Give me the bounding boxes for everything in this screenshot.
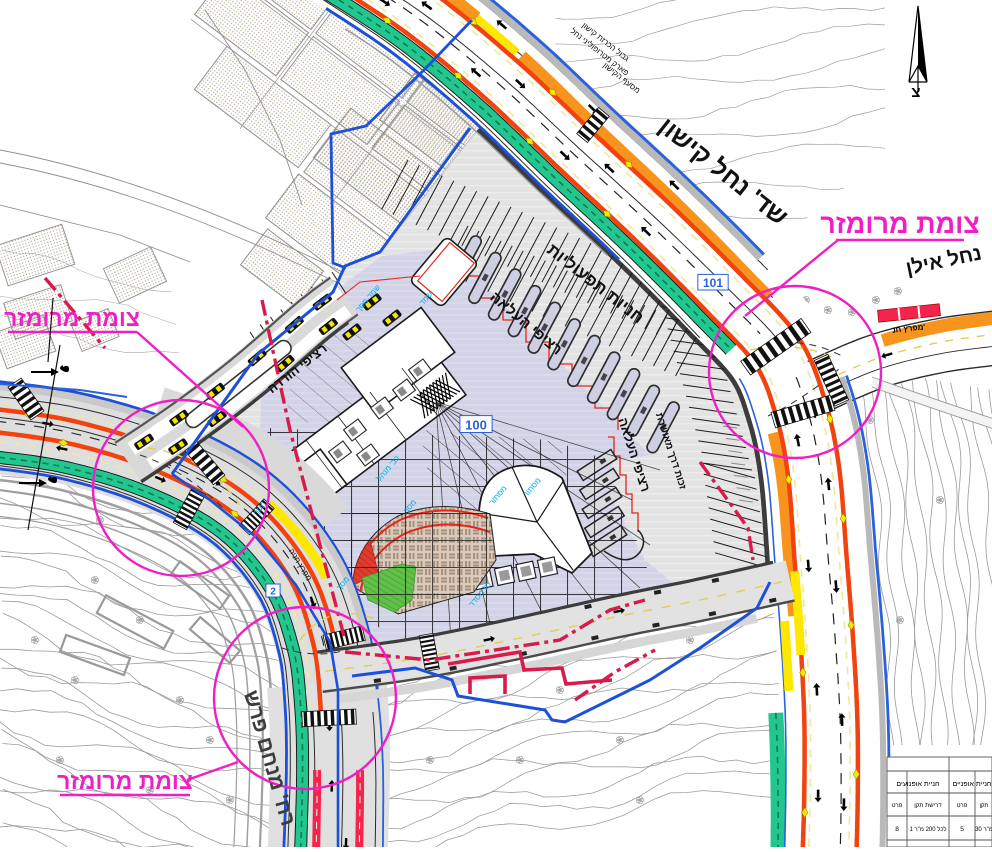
svg-text:5: 5 (960, 826, 964, 833)
svg-text:פרט: פרט (892, 803, 903, 809)
svg-text:צומת מרומזר: צומת מרומזר (57, 768, 193, 794)
svg-text:חניית אופניים: חניית אופניים (952, 781, 991, 788)
svg-text:תקן: תקן (979, 803, 988, 809)
svg-text:2: 2 (270, 587, 276, 598)
svg-text:צ: צ (911, 84, 920, 101)
svg-text:8: 8 (895, 826, 899, 833)
svg-text:דרישת תקן: דרישת תקן (914, 803, 942, 809)
svg-text:צומת מרומזר: צומת מרומזר (820, 209, 979, 239)
svg-text:101: 101 (703, 276, 723, 290)
svg-text:צומת מרומזר: צומת מרומזר (4, 305, 140, 331)
svg-text:פרט: פרט (957, 803, 968, 809)
svg-text:100: 100 (465, 417, 487, 432)
svg-text:1 לכל 200 מ"ר: 1 לכל 200 מ"ר (909, 825, 946, 833)
svg-text:מ"ר 30: מ"ר 30 (975, 827, 992, 833)
svg-text:חניית אופנועים: חניית אופנועים (896, 781, 940, 788)
